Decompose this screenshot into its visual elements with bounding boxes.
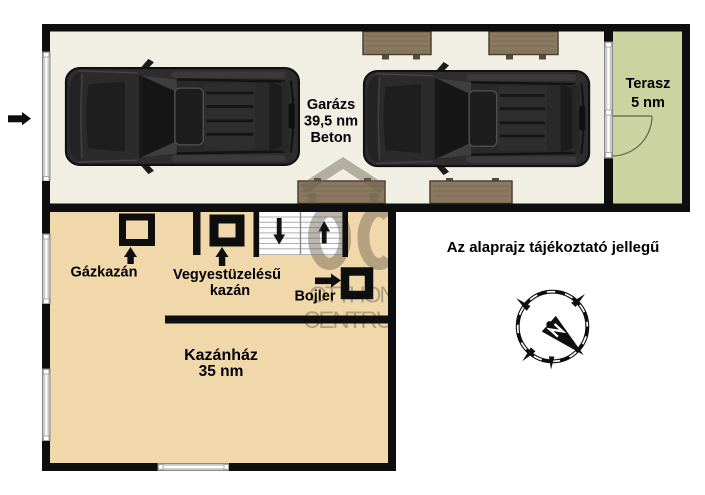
svg-text:35 nm: 35 nm <box>199 363 244 380</box>
svg-text:Vegyestüzelésű: Vegyestüzelésű <box>173 267 281 283</box>
svg-text:39,5 nm: 39,5 nm <box>304 114 358 130</box>
svg-text:Az alaprajz tájékoztató jelleg: Az alaprajz tájékoztató jellegű <box>447 239 660 256</box>
svg-text:5 nm: 5 nm <box>631 95 665 111</box>
svg-text:Garázs: Garázs <box>307 97 355 113</box>
svg-text:Beton: Beton <box>310 130 351 146</box>
svg-text:Gázkazán: Gázkazán <box>71 265 138 281</box>
svg-text:Kazánház: Kazánház <box>184 347 258 364</box>
svg-text:kazán: kazán <box>210 283 250 299</box>
svg-text:Bojler: Bojler <box>294 289 335 305</box>
svg-text:Terasz: Terasz <box>626 76 671 92</box>
